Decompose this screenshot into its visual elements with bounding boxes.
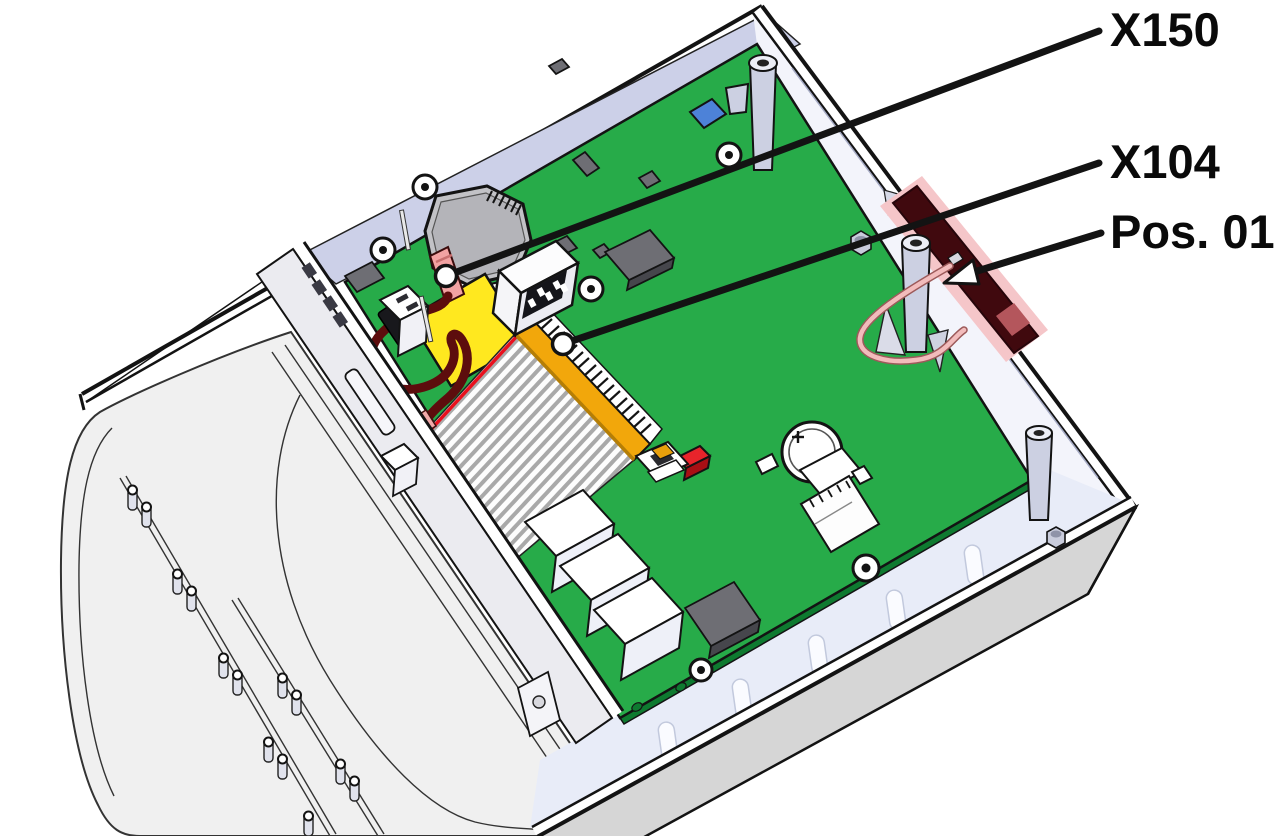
illustration-stage: X150 X104 Pos. 01 (0, 0, 1280, 836)
screw (853, 555, 879, 581)
figure-canvas: X150 X104 Pos. 01 (0, 0, 1280, 836)
callout-dot-x104 (553, 334, 574, 355)
screw (690, 659, 712, 681)
screw (579, 277, 603, 301)
callout-label-x150: X150 (1110, 3, 1220, 56)
callout-label-x104: X104 (1110, 135, 1220, 188)
callout-line-pos01 (974, 233, 1101, 272)
hex-nut (1047, 527, 1065, 548)
callout-dot-x150 (436, 266, 457, 287)
chip (549, 59, 569, 74)
lid-clip (304, 812, 313, 836)
short-boss (726, 84, 748, 114)
callout-label-pos01: Pos. 01 (1110, 205, 1275, 258)
standoff-post (1026, 426, 1052, 520)
screw (413, 175, 437, 199)
screw (371, 238, 395, 262)
